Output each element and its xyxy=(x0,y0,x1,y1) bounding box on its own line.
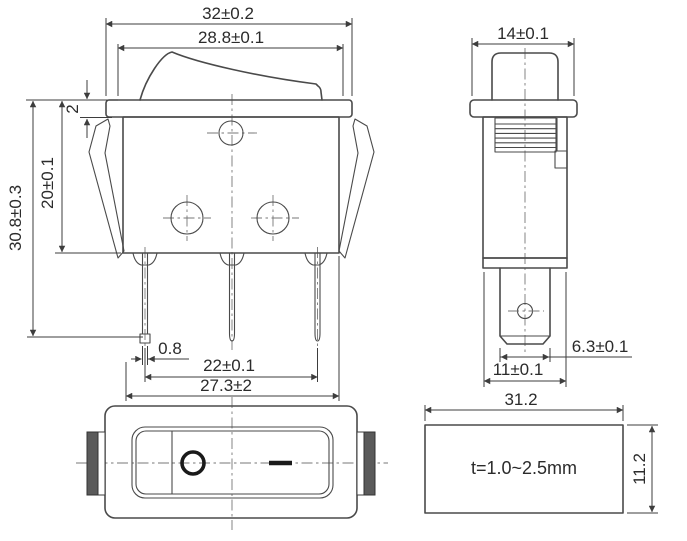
rocker-actuator xyxy=(140,52,322,100)
top-view xyxy=(76,397,388,530)
technical-drawing-canvas: 32±0.2 28.8±0.1 2 20±0.1 30.8±0.3 xyxy=(0,0,687,541)
rib-block xyxy=(495,118,556,152)
mounting-flange-side xyxy=(470,100,577,117)
clip-latch-side xyxy=(555,151,567,168)
dim-overall-width-label: 32±0.2 xyxy=(202,4,254,23)
mounting-clip-left xyxy=(89,119,124,258)
mounting-clip-right-top xyxy=(357,432,375,495)
dim-cutout-width-label: 31.2 xyxy=(504,390,537,409)
dim-terminal-width-label: 6.3±0.1 xyxy=(572,337,629,356)
dim-rocker-width-label: 28.8±0.1 xyxy=(198,28,264,47)
dim-overall-height-label: 30.8±0.3 xyxy=(6,185,25,251)
dim-lower-span-label: 27.3±2 xyxy=(200,376,252,395)
dim-body-height-label: 20±0.1 xyxy=(38,157,57,209)
dim-body-depth-label: 11±0.1 xyxy=(493,360,544,379)
dim-rocker-width: 28.8±0.1 xyxy=(118,28,343,96)
dim-cutout-width: 31.2 xyxy=(425,390,623,421)
mounting-flange xyxy=(106,100,352,117)
rocker-bezel xyxy=(132,427,333,498)
panel-thickness-note: t=1.0~2.5mm xyxy=(471,458,577,478)
dim-lower-span: 27.3±2 xyxy=(126,256,339,401)
dim-flange-thickness-label: 2 xyxy=(63,104,82,113)
pin-base-right xyxy=(305,253,327,265)
dim-flange-thickness: 2 xyxy=(26,80,118,138)
mounting-clip-right xyxy=(339,119,374,258)
rocker-switch-drawing: 32±0.2 28.8±0.1 2 20±0.1 30.8±0.3 xyxy=(0,0,687,541)
dim-overall-width: 32±0.2 xyxy=(106,4,352,96)
side-view: 14±0.1 6.3±0.1 11±0.1 xyxy=(470,24,632,387)
dim-pin-width-label: 0.8 xyxy=(158,339,182,358)
dim-body-height: 20±0.1 xyxy=(38,101,121,253)
switch-body xyxy=(123,117,339,253)
dim-pin-spacing-label: 22±0.1 xyxy=(203,356,255,375)
dim-side-width-label: 14±0.1 xyxy=(497,24,549,43)
mounting-clip-left-top xyxy=(87,432,105,495)
switch-top-outline xyxy=(105,406,357,518)
front-view: 32±0.2 28.8±0.1 2 20±0.1 30.8±0.3 xyxy=(6,4,374,401)
rocker-top[interactable] xyxy=(136,431,329,494)
panel-cutout: t=1.0~2.5mm 31.2 11.2 xyxy=(425,390,658,513)
dim-cutout-height-label: 11.2 xyxy=(630,453,649,485)
dim-cutout-height: 11.2 xyxy=(627,425,658,513)
